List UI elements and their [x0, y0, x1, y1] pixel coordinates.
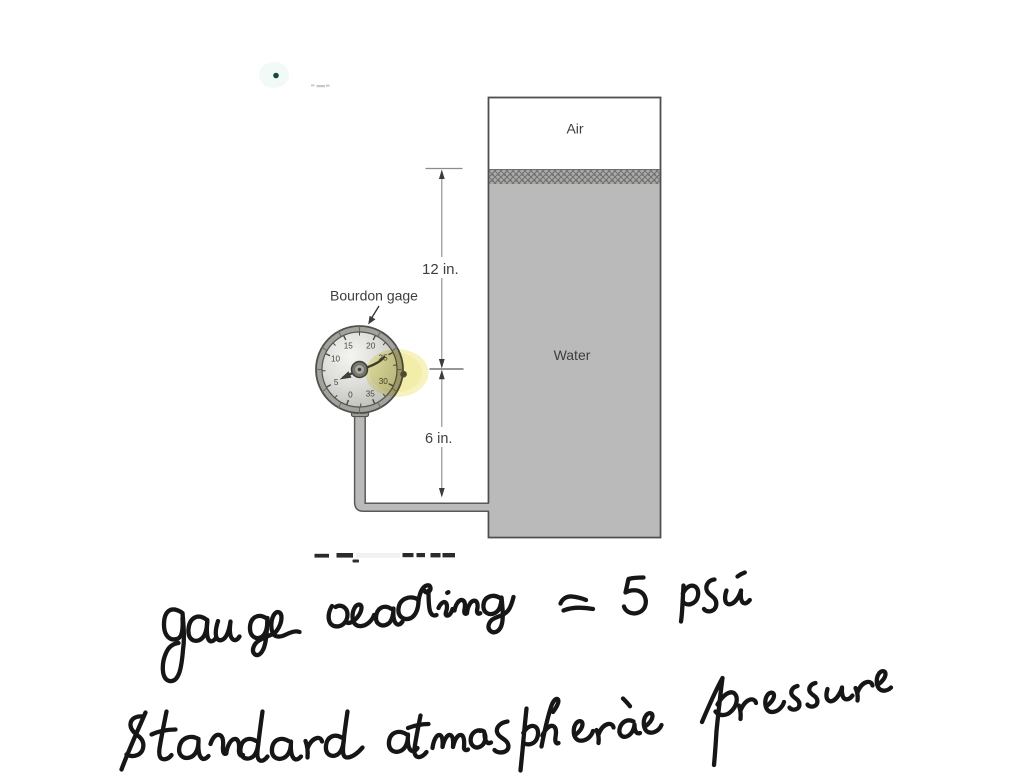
svg-text:0: 0: [348, 390, 353, 399]
svg-text:35: 35: [366, 390, 376, 399]
svg-text:20: 20: [366, 342, 376, 351]
svg-text:12 in.: 12 in.: [422, 261, 459, 278]
svg-text:Air: Air: [566, 121, 583, 137]
svg-text:10: 10: [331, 354, 341, 363]
svg-text:Bourdon gage: Bourdon gage: [330, 288, 418, 304]
svg-text:15: 15: [344, 342, 354, 351]
svg-text:Water: Water: [554, 347, 591, 363]
svg-text:6 in.: 6 in.: [425, 431, 452, 447]
svg-text:5: 5: [334, 378, 339, 387]
